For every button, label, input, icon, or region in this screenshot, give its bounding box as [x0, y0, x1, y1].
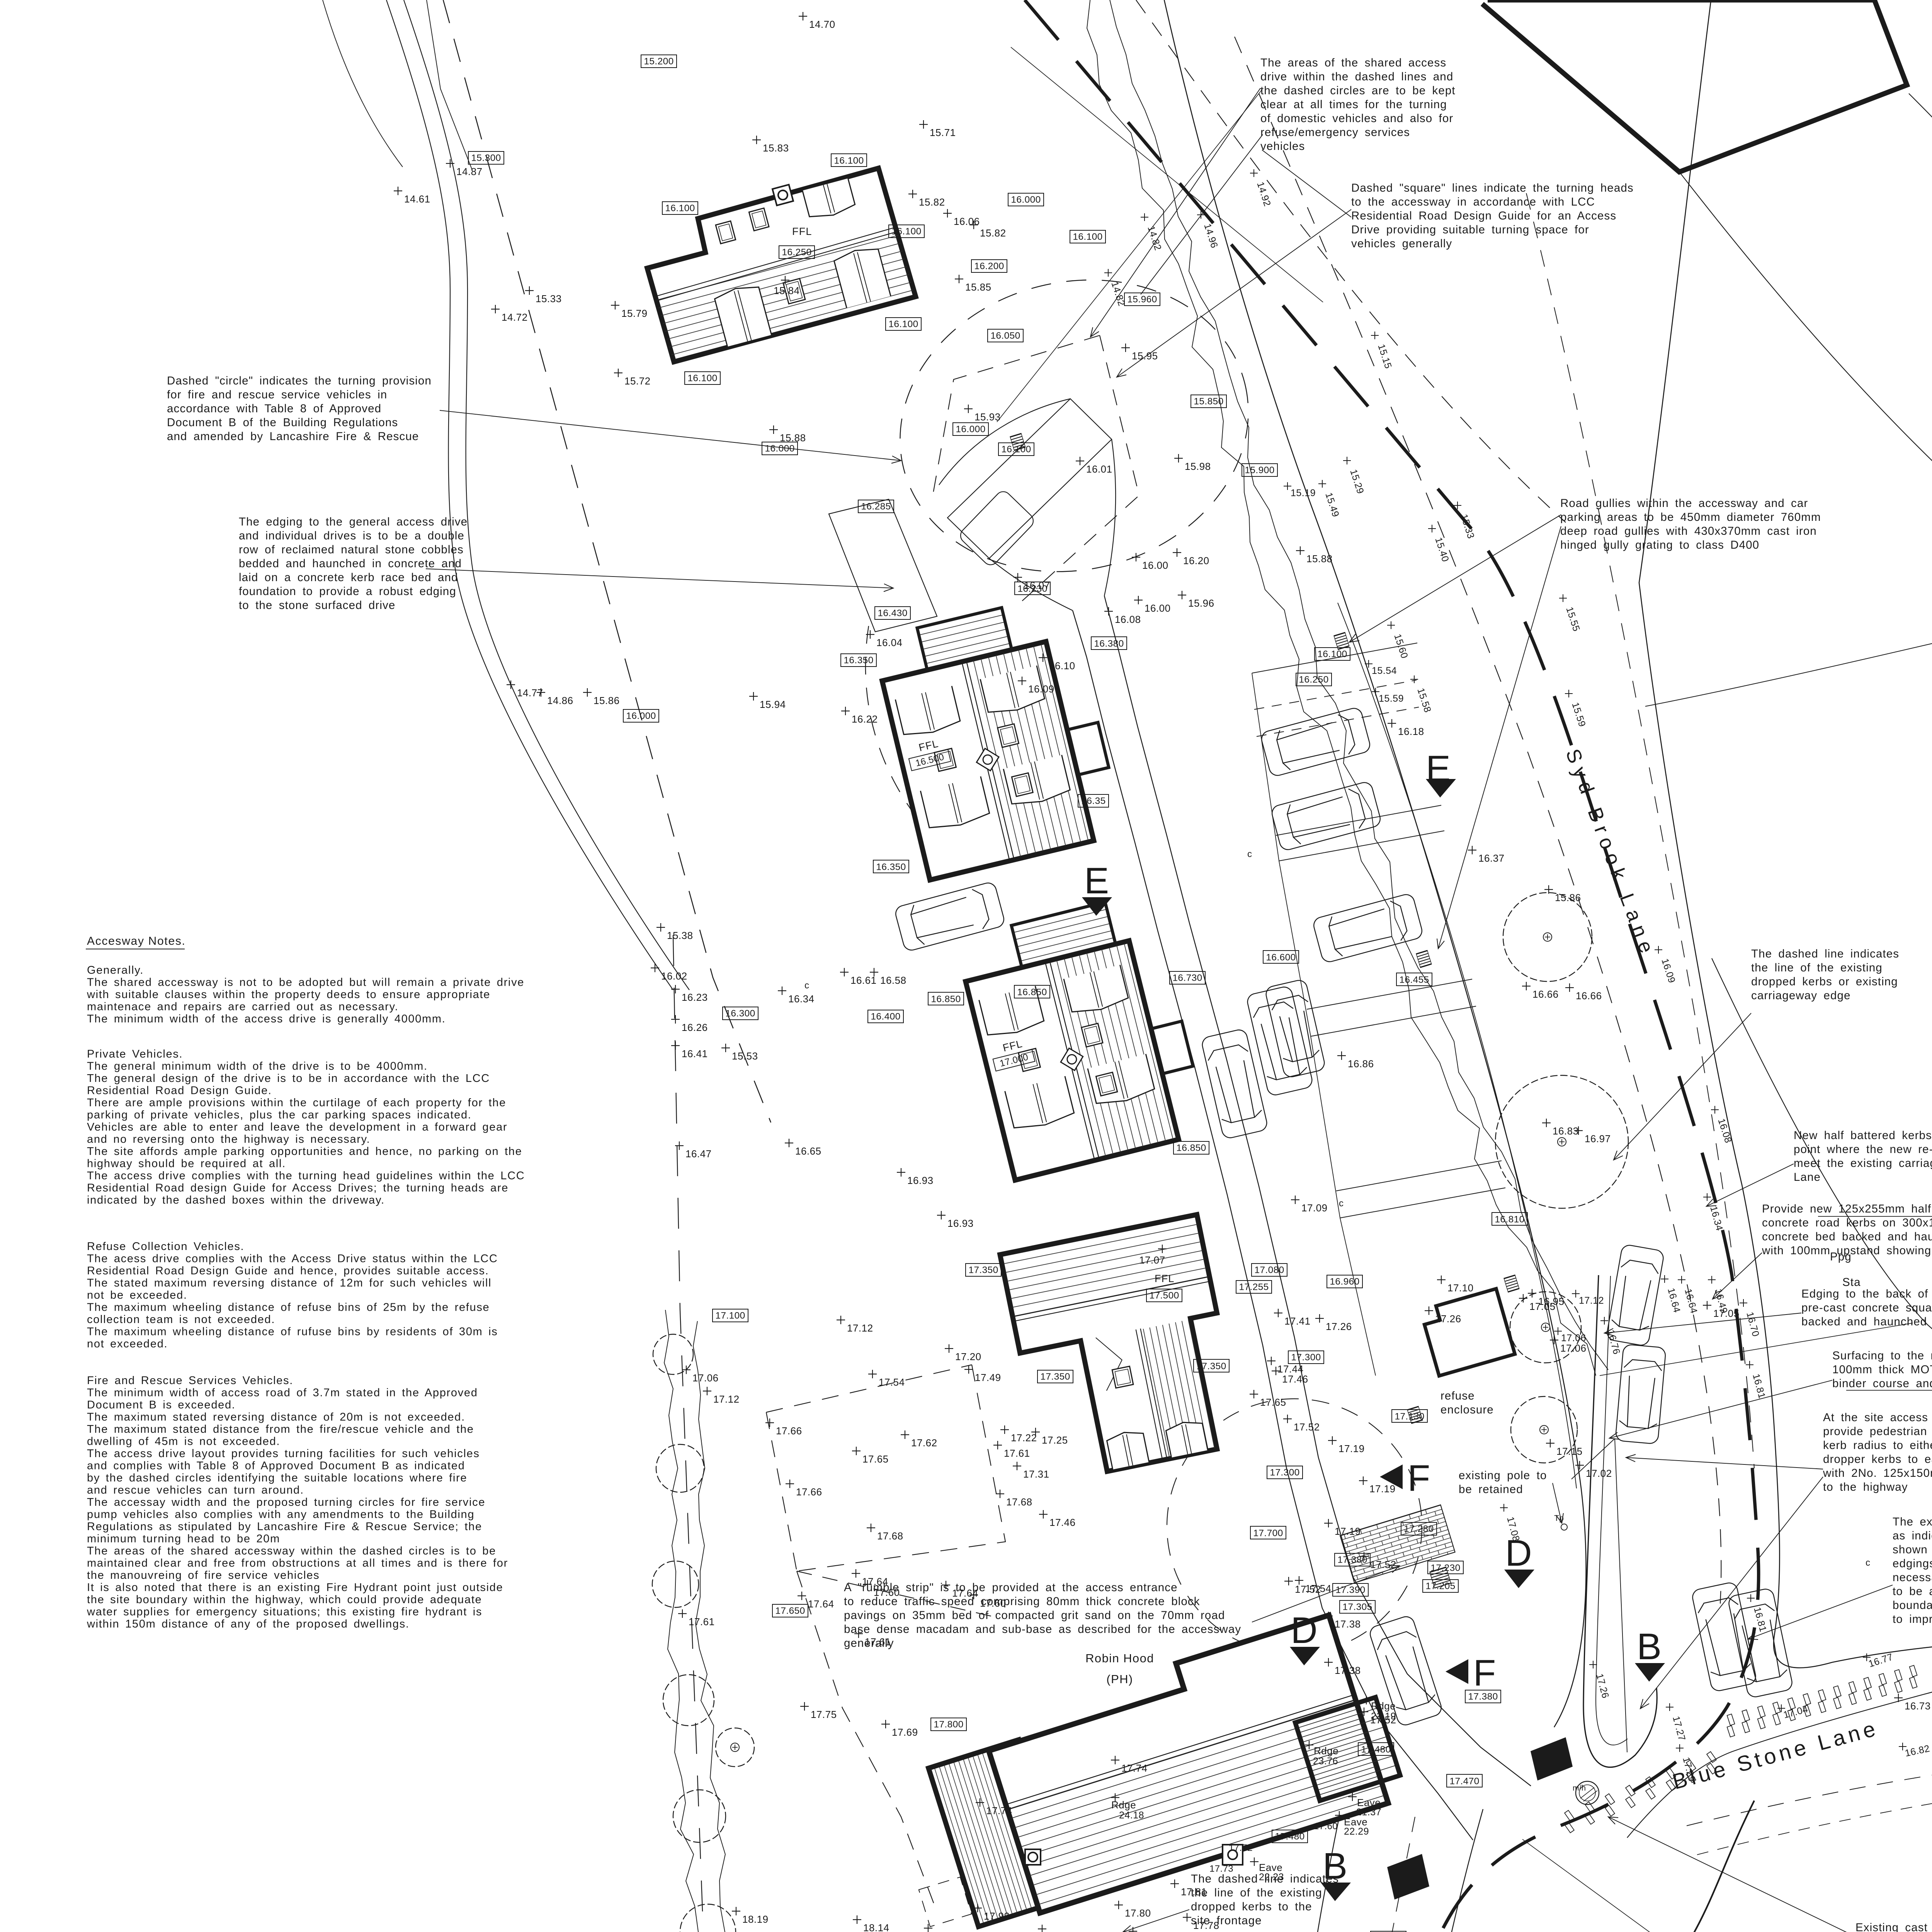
svg-text:not be exceeded.: not be exceeded. [87, 1289, 187, 1301]
svg-text:17.800: 17.800 [934, 1719, 963, 1730]
svg-text:The maximum wheeling distance: The maximum wheeling distance of rufuse … [87, 1326, 498, 1338]
svg-text:15.84: 15.84 [774, 285, 800, 296]
svg-text:17.64: 17.64 [808, 1598, 834, 1610]
svg-text:row of reclaimed natural stone: row of reclaimed natural stone cobbles [239, 543, 464, 556]
svg-text:17.19: 17.19 [1335, 1526, 1361, 1537]
svg-text:by the dashed circles identify: by the dashed circles identifying the su… [87, 1472, 467, 1484]
svg-text:base dense macadam and sub-bas: base dense macadam and sub-base as descr… [844, 1623, 1241, 1636]
svg-text:16.66: 16.66 [1532, 988, 1559, 1000]
svg-text:as indicated with new pre-cast: as indicated with new pre-cast concrete … [1893, 1529, 1932, 1542]
svg-text:backed and haunched with concr: backed and haunched with concrete [1801, 1315, 1932, 1328]
svg-text:accordance with Table 8 of App: accordance with Table 8 of Approved [167, 402, 381, 415]
svg-text:17.52: 17.52 [1370, 1714, 1396, 1726]
svg-text:Document B of the Building Reg: Document B of the Building Regulations [167, 416, 398, 429]
svg-text:carriageway edge: carriageway edge [1751, 989, 1850, 1002]
svg-text:to the accessway in accordance: to the accessway in accordance with LCC [1351, 196, 1595, 208]
svg-text:16.100: 16.100 [834, 156, 864, 166]
svg-text:100mm thick MOT Type 1 sub-bas: 100mm thick MOT Type 1 sub-base; 60mm th… [1832, 1363, 1932, 1376]
svg-text:dropper kerbs to each side com: dropper kerbs to each side comprising 12… [1823, 1453, 1932, 1466]
svg-text:and rescue vehicles can turn a: and rescue vehicles can turn around. [87, 1484, 304, 1497]
svg-text:The existing highway junction: The existing highway junction with Syd B… [1893, 1515, 1932, 1528]
svg-text:17.72: 17.72 [1229, 1843, 1253, 1853]
svg-text:16.430: 16.430 [878, 608, 907, 619]
svg-text:17.26: 17.26 [1326, 1321, 1352, 1332]
svg-text:Robin Hood: Robin Hood [1085, 1651, 1154, 1665]
svg-text:with 2No. 125x150mm bullnose p: with 2No. 125x150mm bullnose pre-cast co… [1823, 1467, 1932, 1480]
svg-text:vehicles: vehicles [1260, 140, 1305, 153]
svg-text:16.58: 16.58 [880, 975, 906, 986]
svg-text:FFL: FFL [792, 226, 812, 237]
svg-text:The accessay width and the pro: The accessay width and the proposed turn… [87, 1496, 485, 1509]
svg-text:16.455: 16.455 [1399, 975, 1429, 985]
svg-text:17.60: 17.60 [874, 1587, 900, 1598]
svg-text:17.300: 17.300 [1270, 1468, 1299, 1478]
svg-text:parking of private vehicles, p: parking of private vehicles, plus the ca… [87, 1109, 472, 1121]
svg-text:Residential Road Design Guide: Residential Road Design Guide for an Acc… [1351, 209, 1616, 222]
svg-text:vehicles generally: vehicles generally [1351, 237, 1452, 250]
svg-text:refuse/emergency services: refuse/emergency services [1260, 126, 1410, 139]
svg-text:water supplies for emergency s: water supplies for emergency situations;… [87, 1606, 482, 1618]
svg-text:necessary and new thermoplasti: necessary and new thermoplastic white li… [1893, 1571, 1932, 1584]
svg-text:17.65: 17.65 [862, 1453, 889, 1465]
svg-text:16.050: 16.050 [990, 331, 1020, 341]
svg-text:17.700: 17.700 [1253, 1528, 1283, 1539]
svg-text:At the site access entrance an: At the site access entrance and the end … [1823, 1411, 1932, 1424]
svg-text:maintenace and repairs are car: maintenace and repairs are carried out a… [87, 1001, 398, 1013]
svg-text:deep road gullies with 430x370: deep road gullies with 430x370mm cast ir… [1560, 525, 1817, 537]
svg-text:15.86: 15.86 [594, 695, 620, 706]
svg-text:15.98: 15.98 [1185, 461, 1211, 472]
svg-text:The edging to the general acce: The edging to the general access drive [239, 515, 468, 528]
svg-text:edgings to the rear; the exist: edgings to the rear; the existing white … [1893, 1557, 1932, 1570]
svg-text:17.255: 17.255 [1239, 1282, 1269, 1293]
svg-text:(PH): (PH) [1106, 1672, 1133, 1686]
svg-text:of domestic vehicles and also: of domestic vehicles and also for [1260, 112, 1453, 125]
svg-text:Rdge: Rdge [1314, 1745, 1338, 1757]
svg-text:The areas of the shared access: The areas of the shared access [1260, 56, 1446, 69]
svg-text:17.380: 17.380 [1337, 1555, 1367, 1565]
svg-text:17.68: 17.68 [1006, 1496, 1032, 1508]
svg-text:Edging to the back of the newl: Edging to the back of the newly formed f… [1801, 1287, 1932, 1300]
svg-text:provide pedestrian crossings t: provide pedestrian crossings to comprise… [1823, 1425, 1932, 1438]
svg-text:17.500: 17.500 [1149, 1291, 1179, 1301]
svg-text:m/h: m/h [1573, 1784, 1586, 1793]
svg-text:17.25: 17.25 [1042, 1434, 1068, 1446]
svg-text:15.96: 15.96 [1188, 597, 1214, 609]
svg-text:concrete road kerbs on 300x150: concrete road kerbs on 300x150mm deep in… [1762, 1216, 1932, 1229]
svg-text:The shared accessway is not to: The shared accessway is not to be adopte… [87, 976, 524, 989]
svg-text:enclosure: enclosure [1440, 1403, 1494, 1416]
svg-text:16.200: 16.200 [974, 261, 1004, 272]
svg-text:The access drive complies with: The access drive complies with the turni… [87, 1170, 525, 1182]
svg-text:15.33: 15.33 [536, 293, 562, 304]
svg-text:highway should be required at: highway should be required at all. [87, 1158, 286, 1170]
svg-text:with suitable clauses within t: with suitable clauses within the propert… [87, 988, 490, 1001]
svg-text:The general minimum width of t: The general minimum width of the drive i… [87, 1060, 428, 1073]
svg-text:16.34: 16.34 [788, 993, 815, 1005]
svg-text:c: c [804, 980, 809, 991]
svg-text:16.250: 16.250 [782, 247, 811, 258]
svg-text:The site affords ample parking: The site affords ample parking opportuni… [87, 1145, 522, 1158]
svg-text:16.730: 16.730 [1172, 973, 1202, 983]
svg-text:17.10: 17.10 [1447, 1282, 1474, 1294]
svg-text:16.10: 16.10 [1049, 660, 1075, 672]
svg-text:17.74: 17.74 [1121, 1762, 1148, 1774]
svg-text:17.205: 17.205 [1425, 1581, 1455, 1592]
svg-text:16.20: 16.20 [1183, 555, 1209, 566]
svg-text:Accesway Notes.: Accesway Notes. [87, 935, 186, 947]
svg-text:for fire and rescue service ve: for fire and rescue service vehicles in [167, 388, 387, 401]
svg-text:16.100: 16.100 [888, 319, 918, 330]
svg-text:E: E [1084, 860, 1109, 901]
svg-text:16.400: 16.400 [871, 1012, 900, 1022]
svg-text:15.71: 15.71 [930, 127, 956, 138]
svg-text:17.62: 17.62 [911, 1437, 937, 1449]
svg-text:17.66: 17.66 [776, 1425, 802, 1437]
svg-text:Lane: Lane [1794, 1171, 1821, 1184]
svg-text:16.18: 16.18 [1398, 726, 1424, 737]
svg-text:17.100: 17.100 [715, 1311, 745, 1321]
svg-text:17.68: 17.68 [877, 1530, 903, 1542]
svg-text:24.18: 24.18 [1119, 1810, 1144, 1821]
svg-text:and individual drives is to be: and individual drives is to be a double [239, 529, 464, 542]
svg-text:16.26: 16.26 [682, 1022, 708, 1033]
svg-text:pre-cast concrete square top e: pre-cast concrete square top edgings on … [1801, 1301, 1932, 1314]
svg-text:meet the existing carriageway: meet the existing carriageway edge to Sy… [1794, 1157, 1932, 1170]
svg-text:17.06: 17.06 [1560, 1342, 1587, 1354]
svg-text:The minimum width of access ro: The minimum width of access road of 3.7m… [87, 1387, 478, 1399]
svg-text:17.81: 17.81 [1181, 1886, 1207, 1898]
svg-text:the manouvreing of fire servic: the manouvreing of fire service vehicles [87, 1569, 320, 1582]
svg-text:15.88: 15.88 [1306, 553, 1333, 565]
svg-text:16.000: 16.000 [765, 444, 794, 454]
svg-text:dropped kerbs to the: dropped kerbs to the [1191, 1900, 1312, 1913]
svg-text:17.07: 17.07 [1139, 1254, 1165, 1266]
svg-text:17.99: 17.99 [984, 1910, 1010, 1922]
svg-text:17.46: 17.46 [1282, 1373, 1308, 1385]
svg-text:15.85: 15.85 [965, 281, 992, 293]
svg-text:D: D [1291, 1610, 1317, 1651]
svg-text:17.350: 17.350 [1196, 1361, 1226, 1372]
svg-text:collection team is not exceede: collection team is not exceeded. [87, 1313, 275, 1326]
svg-text:The maximum wheeling distance: The maximum wheeling distance of refuse … [87, 1301, 490, 1314]
svg-text:shown with 1:40 fall towards t: shown with 1:40 fall towards the highway… [1893, 1543, 1932, 1556]
svg-text:Residential Road design Guide: Residential Road design Guide for Access… [87, 1182, 509, 1194]
svg-text:14.72: 14.72 [502, 311, 528, 323]
svg-text:within 150m distance of any of: within 150m distance of any of the propo… [87, 1618, 410, 1630]
svg-text:17.52: 17.52 [1370, 1559, 1396, 1570]
svg-text:16.810: 16.810 [1495, 1214, 1524, 1225]
svg-text:17.78: 17.78 [1193, 1920, 1219, 1931]
svg-text:17.61: 17.61 [865, 1636, 891, 1648]
svg-text:Document B is exceeded.: Document B is exceeded. [87, 1399, 236, 1411]
svg-text:the site boundary within the h: the site boundary within the highway, wh… [87, 1594, 482, 1606]
svg-text:The minimum width of the acces: The minimum width of the access drive is… [87, 1013, 446, 1025]
svg-text:18.19: 18.19 [742, 1913, 769, 1925]
svg-text:17.12: 17.12 [713, 1393, 740, 1405]
svg-text:Drive providing suitable turni: Drive providing suitable turning space f… [1351, 223, 1589, 236]
svg-text:15.79: 15.79 [621, 308, 648, 319]
svg-text:16.600: 16.600 [1266, 952, 1296, 963]
svg-text:15.82: 15.82 [919, 196, 945, 208]
svg-text:the line of the existing: the line of the existing [1191, 1886, 1322, 1899]
svg-text:16.01: 16.01 [1086, 463, 1112, 475]
svg-text:17.46: 17.46 [1049, 1517, 1076, 1528]
svg-text:15.200: 15.200 [644, 56, 673, 67]
svg-text:17.75: 17.75 [811, 1709, 837, 1720]
svg-text:clear at all times for the tur: clear at all times for the turning [1260, 98, 1447, 111]
svg-text:14.70: 14.70 [809, 19, 835, 30]
svg-text:The dashed line indicates: The dashed line indicates [1751, 947, 1899, 960]
svg-text:The access drive layout provid: The access drive layout provides turning… [87, 1447, 480, 1460]
svg-text:15.54: 15.54 [1372, 665, 1397, 676]
svg-text:16.850: 16.850 [931, 994, 961, 1005]
svg-text:Existing cast iron manhole cov: Existing cast iron manhole cover & frame [1855, 1921, 1932, 1932]
svg-text:Residential Road Design Guide.: Residential Road Design Guide. [87, 1085, 272, 1097]
svg-text:B: B [1637, 1626, 1662, 1667]
svg-text:The acess drive complies with: The acess drive complies with the Access… [87, 1253, 498, 1265]
svg-text:15.960: 15.960 [1127, 294, 1157, 305]
svg-text:15.82: 15.82 [980, 227, 1006, 239]
svg-text:pump vehicles also complies wi: pump vehicles also complies with any ame… [87, 1509, 474, 1521]
svg-text:Sta: Sta [1842, 1276, 1861, 1289]
svg-text:17.19: 17.19 [1369, 1483, 1396, 1495]
svg-text:pavings on 35mm bed of compact: pavings on 35mm bed of compacted grit sa… [844, 1609, 1225, 1622]
svg-text:foundation to provide a robust: foundation to provide a robust edging [239, 585, 456, 598]
svg-text:16.93: 16.93 [907, 1175, 934, 1186]
svg-text:16.285: 16.285 [861, 502, 891, 512]
svg-text:laid on a concrete kerb race b: laid on a concrete kerb race bed and [239, 571, 458, 584]
svg-text:Dashed "circle" indicates the: Dashed "circle" indicates the turning pr… [167, 374, 432, 387]
svg-text:indicated by the dashed boxes: indicated by the dashed boxes within the… [87, 1194, 385, 1206]
svg-text:17.300: 17.300 [1291, 1352, 1321, 1363]
svg-text:16.66: 16.66 [1576, 990, 1602, 1002]
svg-text:16.47: 16.47 [685, 1148, 712, 1160]
svg-text:16.02: 16.02 [661, 970, 687, 982]
svg-text:15.300: 15.300 [471, 153, 501, 163]
svg-text:16.100: 16.100 [1073, 232, 1102, 242]
svg-text:17.26: 17.26 [1435, 1313, 1461, 1325]
svg-text:c: c [1339, 1198, 1344, 1209]
svg-text:c: c [1247, 849, 1252, 859]
svg-text:the line of the existing: the line of the existing [1751, 961, 1883, 974]
svg-text:15.59: 15.59 [1379, 693, 1404, 704]
svg-text:16.73: 16.73 [1905, 1700, 1931, 1712]
svg-text:The dashed line indicates: The dashed line indicates [1191, 1872, 1339, 1885]
svg-text:16.000: 16.000 [626, 711, 656, 721]
svg-text:15.86: 15.86 [1555, 892, 1581, 903]
svg-text:17.02: 17.02 [1586, 1468, 1612, 1479]
svg-text:Ppg: Ppg [1830, 1250, 1852, 1263]
svg-text:17.61: 17.61 [689, 1616, 715, 1628]
svg-text:16.350: 16.350 [876, 862, 906, 872]
svg-text:17.38: 17.38 [1335, 1665, 1361, 1676]
svg-text:There are ample provisions wit: There are ample provisions within the cu… [87, 1097, 506, 1109]
svg-text:17.60: 17.60 [980, 1597, 1006, 1609]
svg-text:17.80: 17.80 [1125, 1907, 1151, 1919]
svg-text:16.00: 16.00 [1145, 602, 1171, 614]
svg-text:17.20: 17.20 [955, 1351, 981, 1362]
svg-text:16.23: 16.23 [682, 992, 708, 1003]
svg-text:17.350: 17.350 [968, 1265, 998, 1276]
svg-text:16.04: 16.04 [876, 637, 903, 648]
svg-text:14.61: 14.61 [404, 193, 430, 205]
svg-text:16.350: 16.350 [844, 655, 873, 666]
svg-text:Residential Road Design Guide: Residential Road Design Guide and hence,… [87, 1265, 489, 1277]
svg-text:16.61: 16.61 [850, 975, 877, 986]
svg-text:16.250: 16.250 [1299, 675, 1328, 685]
svg-text:Vehicles are able to enter and: Vehicles are able to enter and leave the… [87, 1121, 507, 1133]
svg-text:16.41: 16.41 [682, 1048, 708, 1060]
svg-text:Rdge: Rdge [1111, 1799, 1136, 1811]
svg-text:Private Vehicles.: Private Vehicles. [87, 1048, 183, 1060]
svg-text:17.54: 17.54 [879, 1376, 905, 1388]
svg-text:17.52: 17.52 [1294, 1421, 1320, 1433]
svg-text:to the stone surfaced drive: to the stone surfaced drive [239, 599, 395, 612]
svg-text:15.94: 15.94 [760, 699, 786, 710]
svg-text:17.09: 17.09 [1301, 1202, 1328, 1214]
svg-text:drive within the dashed lines: drive within the dashed lines and [1260, 70, 1453, 83]
svg-text:The stated maximum reversing d: The stated maximum reversing distance of… [87, 1277, 492, 1289]
svg-text:17.65: 17.65 [1260, 1396, 1286, 1408]
svg-text:16.100: 16.100 [1001, 444, 1031, 455]
svg-text:17.130: 17.130 [1395, 1412, 1424, 1422]
svg-text:15.95: 15.95 [1132, 350, 1158, 362]
svg-text:minimum turning head to be 20m: minimum turning head to be 20m [87, 1533, 280, 1545]
svg-text:Refuse Collection Vehicles.: Refuse Collection Vehicles. [87, 1240, 244, 1253]
svg-text:16.06: 16.06 [954, 216, 980, 227]
svg-text:17.74: 17.74 [986, 1805, 1012, 1816]
svg-text:17.22: 17.22 [1011, 1432, 1037, 1444]
svg-text:16.93: 16.93 [947, 1218, 974, 1229]
svg-text:17.390: 17.390 [1335, 1585, 1365, 1595]
svg-text:16.97: 16.97 [1585, 1133, 1611, 1145]
svg-text:17.650: 17.650 [775, 1606, 805, 1616]
svg-text:17.12: 17.12 [1579, 1295, 1604, 1306]
svg-text:be retained: be retained [1459, 1483, 1523, 1496]
svg-text:16.230: 16.230 [1017, 584, 1047, 594]
svg-text:15.83: 15.83 [763, 142, 789, 154]
svg-text:17.15: 17.15 [1556, 1446, 1583, 1457]
svg-text:17.64: 17.64 [952, 1587, 978, 1599]
svg-text:17.305: 17.305 [1342, 1602, 1372, 1612]
svg-text:16.850: 16.850 [1017, 987, 1047, 998]
svg-text:15.19: 15.19 [1291, 488, 1316, 498]
svg-text:17.480: 17.480 [1361, 1745, 1391, 1755]
svg-text:16.08: 16.08 [1115, 614, 1141, 625]
svg-text:It is also noted that there i: It is also noted that there is an existi… [87, 1582, 503, 1594]
svg-text:16.380: 16.380 [1094, 639, 1124, 649]
svg-text:17.69: 17.69 [892, 1726, 918, 1738]
svg-text:17.05: 17.05 [1529, 1301, 1556, 1312]
svg-text:16.960: 16.960 [1330, 1277, 1359, 1287]
svg-text:23.76: 23.76 [1313, 1756, 1338, 1767]
svg-text:17.080: 17.080 [1254, 1265, 1284, 1276]
svg-text:FFL: FFL [1155, 1273, 1175, 1284]
svg-text:15.53: 15.53 [732, 1050, 758, 1062]
svg-text:18.99: 18.99 [934, 1930, 961, 1932]
svg-text:existing pole to: existing pole to [1459, 1469, 1547, 1482]
svg-text:17.230: 17.230 [1430, 1563, 1460, 1573]
svg-text:bedded and haunched in concret: bedded and haunched in concrete and [239, 557, 462, 570]
svg-text:boundary of the site is to be: boundary of the site is to be reduced an… [1893, 1599, 1932, 1612]
svg-text:The maximum stated reversing d: The maximum stated reversing distance of… [87, 1411, 465, 1423]
svg-text:to the highway: to the highway [1823, 1481, 1908, 1493]
svg-text:16.100: 16.100 [1317, 649, 1347, 660]
svg-text:17.480: 17.480 [1275, 1832, 1304, 1842]
svg-text:17.41: 17.41 [1284, 1315, 1311, 1327]
svg-text:17.60: 17.60 [1314, 1821, 1338, 1832]
svg-text:14.87: 14.87 [456, 166, 483, 177]
svg-text:14.86: 14.86 [547, 695, 573, 706]
svg-text:17.470: 17.470 [1449, 1776, 1479, 1787]
svg-text:16.35: 16.35 [1081, 796, 1105, 806]
svg-text:17.54: 17.54 [1305, 1583, 1332, 1594]
svg-text:The areas of the shared access: The areas of the shared accessway within… [87, 1545, 496, 1557]
svg-text:and complies with Table 8 of A: and complies with Table 8 of Approved Do… [87, 1460, 465, 1472]
svg-text:18.14: 18.14 [863, 1922, 889, 1932]
svg-text:16.86: 16.86 [1348, 1058, 1374, 1070]
svg-text:17.66: 17.66 [796, 1486, 822, 1498]
svg-text:16.65: 16.65 [795, 1145, 821, 1157]
svg-text:New half battered kerbs to ext: New half battered kerbs to extend to the [1794, 1129, 1932, 1142]
svg-text:Road gullies within the access: Road gullies within the accessway and ca… [1560, 497, 1808, 510]
svg-text:not exceeded.: not exceeded. [87, 1338, 168, 1350]
svg-text:16.000: 16.000 [1011, 195, 1041, 205]
svg-text:16.37: 16.37 [1478, 852, 1505, 864]
svg-text:16.000: 16.000 [956, 424, 985, 435]
svg-text:F: F [1408, 1458, 1430, 1499]
svg-text:dwelling of 45m is not exceede: dwelling of 45m is not exceeded. [87, 1435, 280, 1448]
svg-text:17.49: 17.49 [975, 1372, 1001, 1383]
svg-text:16.00: 16.00 [1142, 560, 1168, 571]
svg-text:15.850: 15.850 [1194, 396, 1223, 407]
svg-text:17.38: 17.38 [1335, 1618, 1361, 1630]
svg-text:maintained clear and free from: maintained clear and free from obstructi… [87, 1557, 508, 1570]
svg-text:binder course and 20mm thick 6: binder course and 20mm thick 6mm size de… [1832, 1377, 1932, 1390]
svg-text:F: F [1473, 1652, 1496, 1694]
svg-text:16.09: 16.09 [1028, 683, 1054, 695]
svg-text:16.100: 16.100 [665, 203, 695, 214]
svg-text:Fire and Rescue Services Vehic: Fire and Rescue Services Vehicles. [87, 1374, 293, 1387]
svg-text:the dashed circles are to be k: the dashed circles are to be kept [1260, 84, 1456, 97]
svg-text:15.72: 15.72 [624, 375, 651, 387]
svg-text:Provide new 125x255mm half bat: Provide new 125x255mm half battered pre-… [1762, 1202, 1932, 1215]
svg-text:22.29: 22.29 [1344, 1826, 1369, 1837]
svg-text:kerb radius to either side wit: kerb radius to either side with 100mm fa… [1823, 1439, 1932, 1452]
svg-text:17.19: 17.19 [1338, 1443, 1365, 1454]
svg-text:17.64: 17.64 [862, 1576, 888, 1587]
svg-text:parking areas to be 450mm diam: parking areas to be 450mm diameter 760mm [1560, 511, 1821, 524]
svg-text:The general design of the driv: The general design of the drive is to be… [87, 1072, 490, 1085]
svg-text:16.100: 16.100 [891, 226, 921, 237]
svg-text:17.31: 17.31 [1023, 1468, 1049, 1480]
svg-text:hinged gully grating to class: hinged gully grating to class D400 [1560, 539, 1759, 551]
svg-text:17.12: 17.12 [847, 1322, 873, 1334]
svg-text:and amended by Lancashire Fire: and amended by Lancashire Fire & Rescue [167, 430, 419, 443]
svg-text:to improve the visibility spla: to improve the visibility splay to Syd B… [1893, 1613, 1932, 1626]
svg-text:The maximum stated distance fr: The maximum stated distance from the fir… [87, 1423, 474, 1435]
svg-text:Generally.: Generally. [87, 964, 144, 976]
svg-text:16.22: 16.22 [852, 713, 878, 725]
svg-text:16.100: 16.100 [687, 373, 717, 384]
svg-text:dropped kerbs or existing: dropped kerbs or existing [1751, 975, 1898, 988]
svg-text:16.300: 16.300 [725, 1009, 755, 1019]
svg-text:Regulations as stipulated by L: Regulations as stipulated by Lancashire … [87, 1520, 482, 1533]
svg-text:17.350: 17.350 [1040, 1372, 1070, 1382]
svg-text:refuse: refuse [1440, 1389, 1475, 1402]
svg-text:17.380: 17.380 [1468, 1692, 1498, 1702]
